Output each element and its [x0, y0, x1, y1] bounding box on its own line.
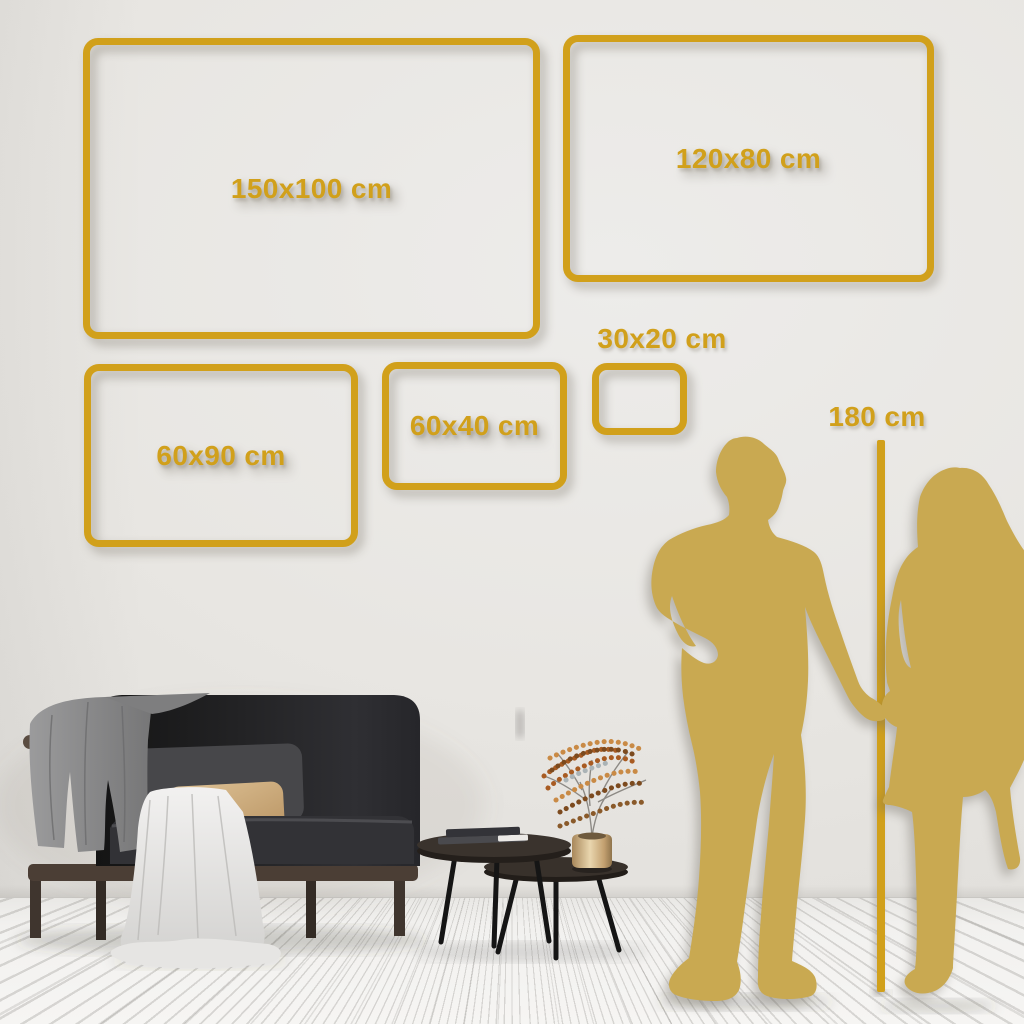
wall-art-size-guide: 150x100 cm 120x80 cm 60x90 cm 60x40 cm 3…	[0, 0, 1024, 1024]
man-silhouette	[651, 437, 886, 1001]
couple-silhouettes	[0, 0, 1024, 1024]
woman-silhouette	[882, 467, 1024, 993]
